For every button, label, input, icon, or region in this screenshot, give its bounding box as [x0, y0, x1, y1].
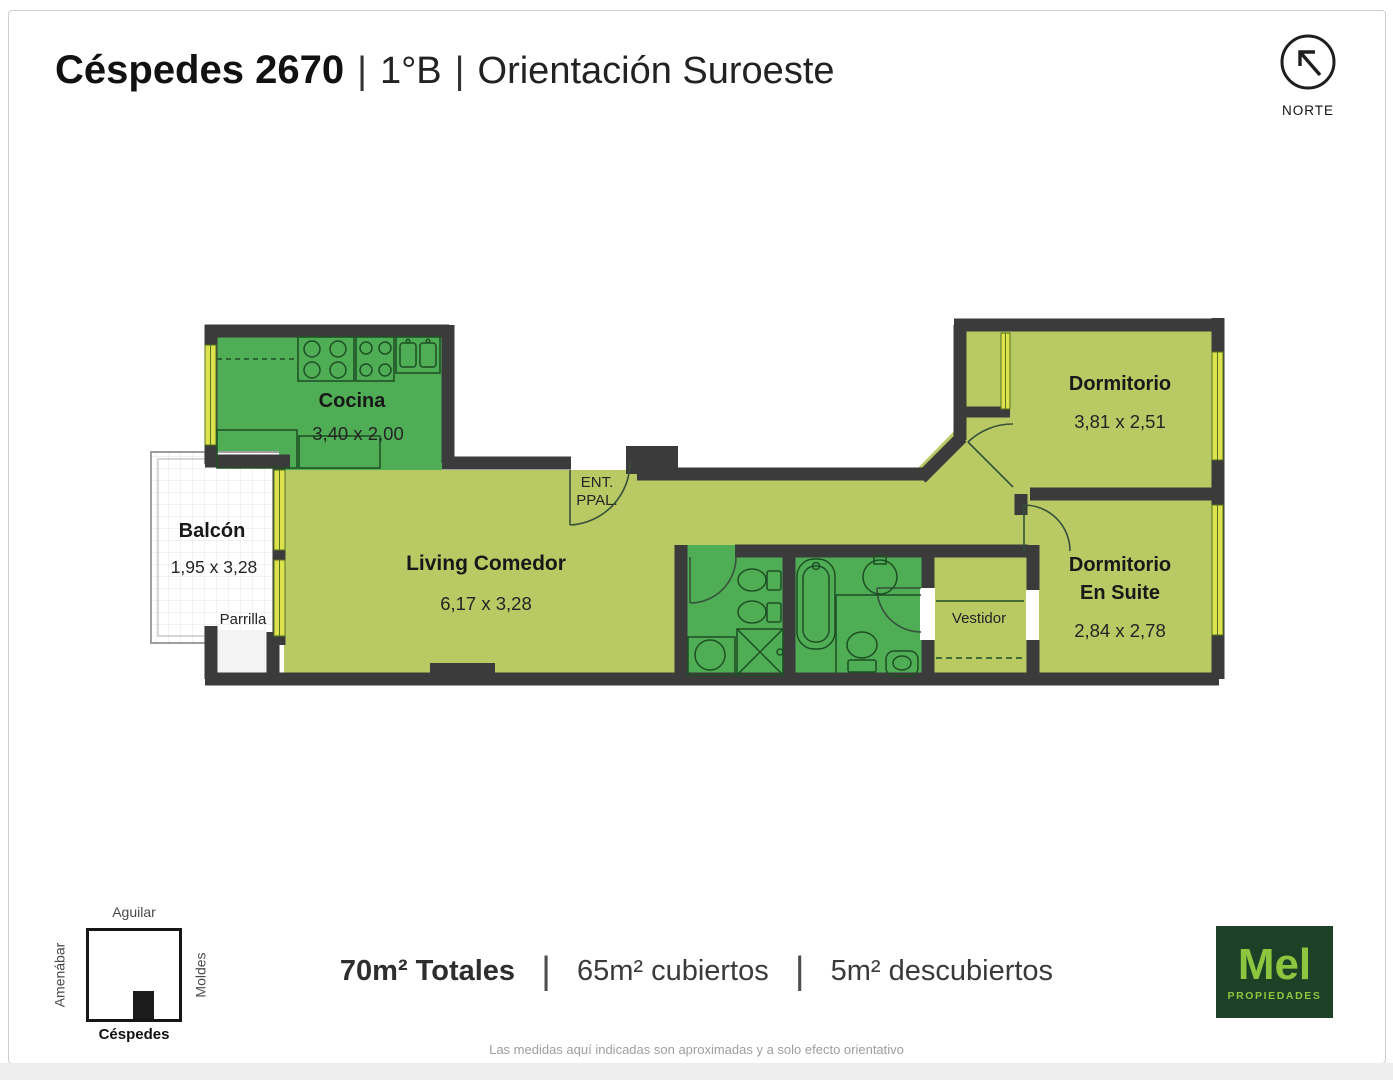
covered-area: 65m² cubiertos	[577, 955, 769, 988]
uncovered-area: 5m² descubiertos	[831, 955, 1053, 988]
total-area: 70m² Totales	[340, 955, 515, 988]
label-entrada-2: PPAL.	[576, 492, 617, 509]
stats-divider: |	[795, 952, 805, 990]
agency-tagline: PROPIEDADES	[1227, 990, 1321, 1002]
dims-dormitorio: 3,81 x 2,51	[1074, 411, 1166, 432]
label-parrilla: Parrilla	[220, 611, 267, 628]
label-suite-1: Dormitorio	[1069, 554, 1171, 576]
label-dormitorio: Dormitorio	[1069, 373, 1171, 395]
label-living: Living Comedor	[406, 552, 566, 575]
parrilla-niche	[217, 630, 267, 679]
label-vestidor: Vestidor	[952, 610, 1006, 627]
dims-balcon: 1,95 x 3,28	[171, 557, 258, 577]
label-suite-2: En Suite	[1080, 582, 1160, 604]
bottom-strip	[0, 1063, 1393, 1080]
dims-cocina: 3,40 x 2,00	[312, 423, 404, 444]
measurements-disclaimer: Las medidas aquí indicadas son aproximad…	[0, 1042, 1393, 1057]
agency-name: Mel	[1238, 943, 1311, 987]
label-cocina: Cocina	[319, 390, 387, 412]
property-marker	[133, 991, 154, 1019]
street-cespedes: Céspedes	[76, 1026, 192, 1043]
label-balcon: Balcón	[179, 520, 246, 542]
area-stats: 70m² Totales | 65m² cubiertos | 5m² desc…	[0, 952, 1393, 990]
stats-divider: |	[541, 952, 551, 990]
dims-living: 6,17 x 3,28	[440, 593, 532, 614]
label-entrada-1: ENT.	[581, 474, 614, 491]
agency-logo: Mel PROPIEDADES	[1216, 926, 1333, 1018]
dims-suite: 2,84 x 2,78	[1074, 620, 1166, 641]
street-aguilar: Aguilar	[86, 904, 182, 920]
